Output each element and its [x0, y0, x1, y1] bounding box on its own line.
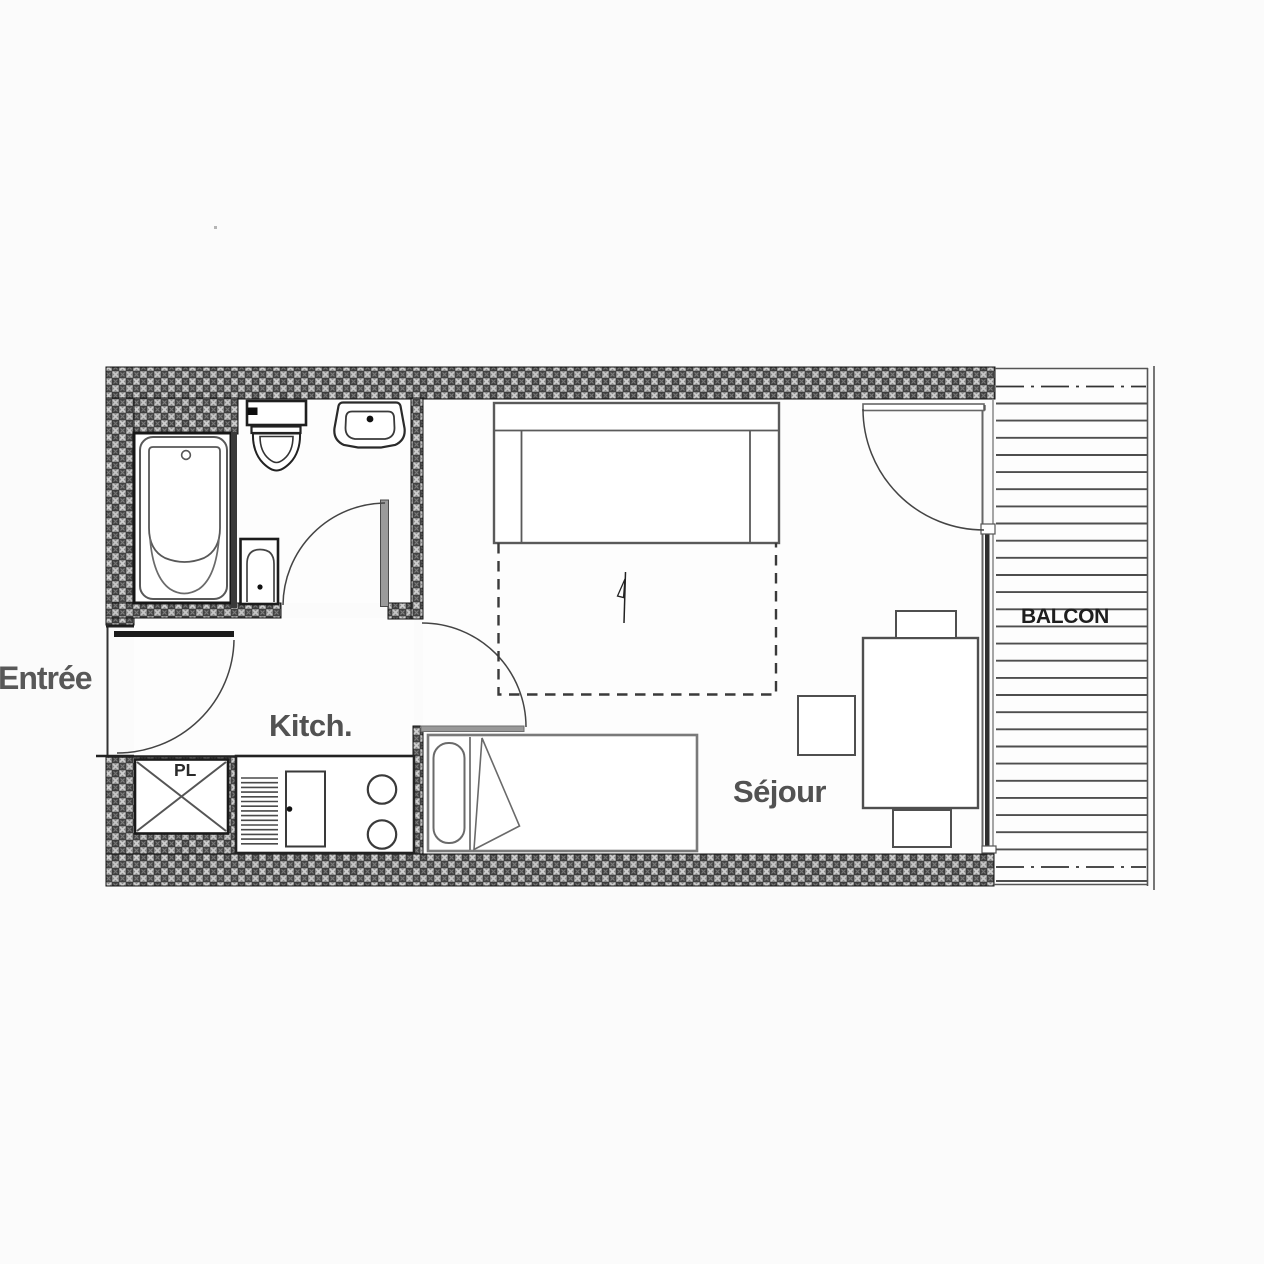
svg-text:BALCON: BALCON: [1021, 605, 1109, 628]
svg-text:PL: PL: [174, 760, 197, 780]
svg-text:Kitch.: Kitch.: [269, 708, 352, 743]
svg-text:Entrée: Entrée: [0, 660, 92, 696]
svg-text:Séjour: Séjour: [733, 774, 826, 809]
